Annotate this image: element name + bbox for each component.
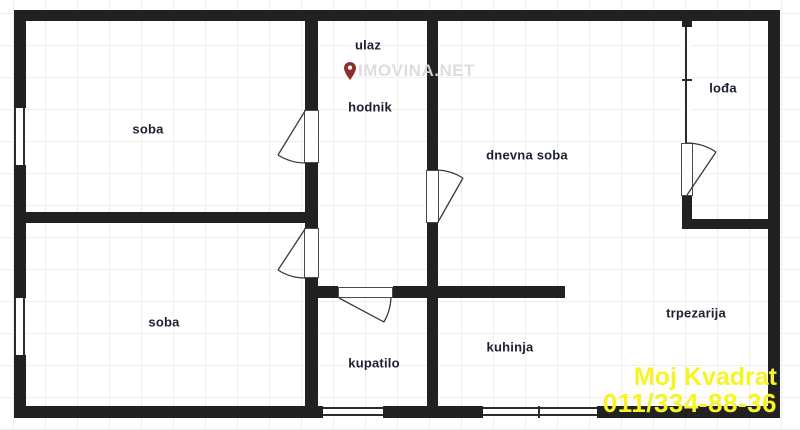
agency-branding: Moj Kvadrat 011/334-88-36 <box>603 364 777 416</box>
door-swing-kupatilo <box>339 298 391 322</box>
room-label-kupatilo: kupatilo <box>348 356 399 371</box>
agency-name: Moj Kvadrat <box>603 364 777 390</box>
watermark-text: IMOVINA.NET <box>358 61 475 81</box>
room-label-hodnik: hodnik <box>348 100 392 115</box>
door-swing-dnevna-soba <box>438 170 463 222</box>
floor-plan: ulaz hodnik soba dnevna soba lođa soba k… <box>0 0 800 430</box>
room-label-dnevna-soba: dnevna soba <box>486 148 568 163</box>
watermark: IMOVINA.NET <box>344 61 475 81</box>
room-label-loda: lođa <box>709 81 737 96</box>
room-label-trpezarija: trpezarija <box>666 306 726 321</box>
door-swing-soba-bottom <box>278 229 305 278</box>
room-label-soba-top: soba <box>132 122 163 137</box>
agency-phone: 011/334-88-36 <box>603 390 777 416</box>
door-swing-loda <box>687 143 716 195</box>
room-label-ulaz: ulaz <box>355 38 381 53</box>
room-label-kuhinja: kuhinja <box>487 340 534 355</box>
room-label-soba-bottom: soba <box>148 315 179 330</box>
door-swing-soba-top <box>278 111 305 163</box>
map-pin-icon <box>344 62 356 80</box>
